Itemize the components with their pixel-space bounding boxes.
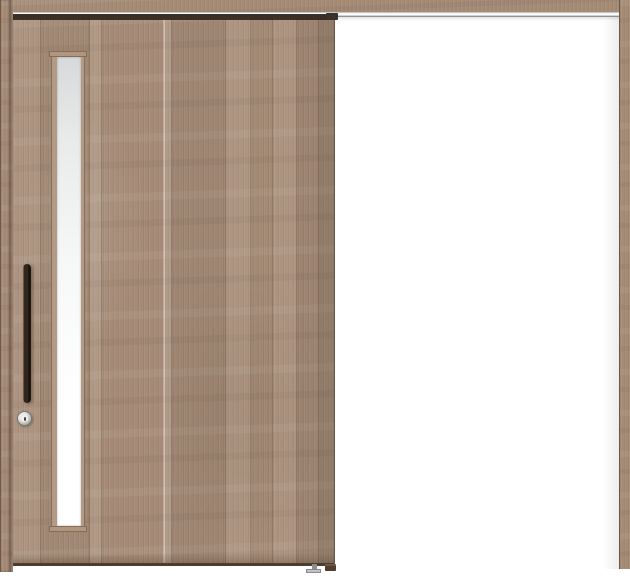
sliding-door-product-photo <box>0 0 630 576</box>
thumb-turn-lock <box>17 411 32 426</box>
door-panel <box>12 18 335 566</box>
right-casing <box>619 0 630 569</box>
left-casing <box>0 0 13 572</box>
wall-track-shadow <box>336 17 619 21</box>
bar-pull-handle <box>23 264 31 403</box>
door-bottom-shade <box>13 553 334 563</box>
frosted-glass-insert <box>57 57 81 526</box>
glass-frame-bottom <box>49 526 87 532</box>
glass-frame <box>51 57 85 526</box>
wall-right-shadow <box>603 17 619 569</box>
floor-guide-base <box>306 569 321 573</box>
door-stopper <box>325 564 336 571</box>
hanger-bracket <box>326 13 338 20</box>
lock-slot <box>24 417 26 421</box>
